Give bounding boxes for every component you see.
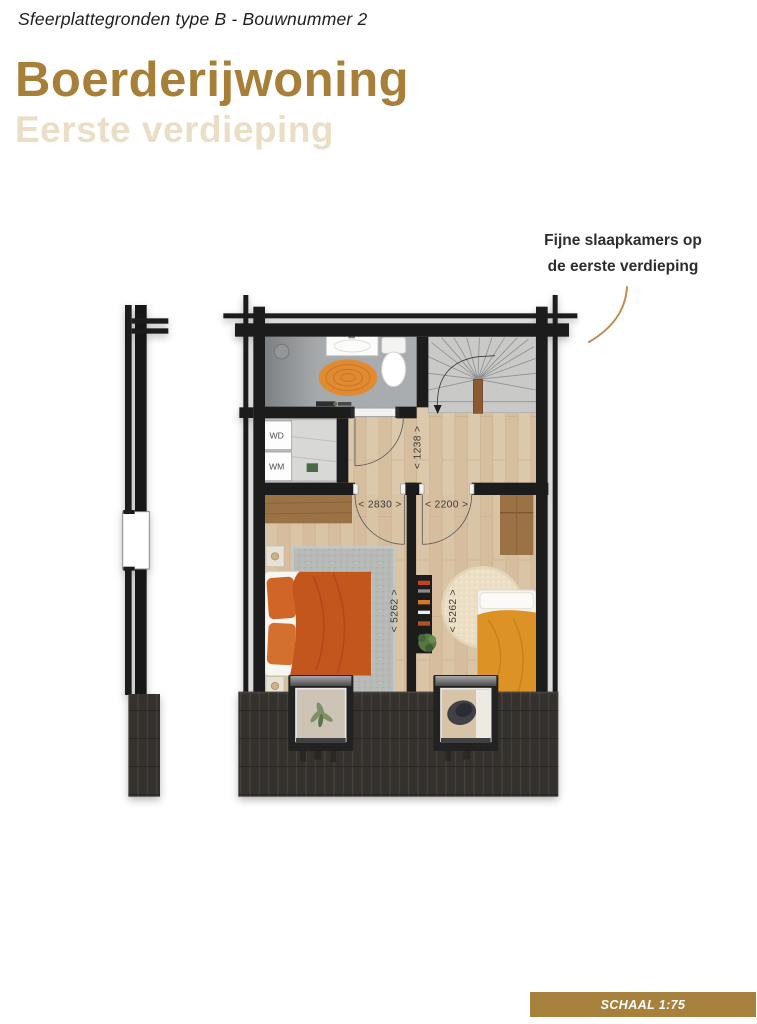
bedroom1-wardrobe (263, 493, 352, 524)
stair-newel-post (473, 379, 482, 413)
callout-line-1: Fijne slaapkamers op (512, 228, 734, 254)
shower-drain-icon (274, 344, 289, 359)
strip-roof (128, 694, 160, 797)
neighbour-wall-strip (123, 305, 169, 797)
washer-label: WM (269, 462, 284, 472)
dormer-window-right (433, 675, 498, 761)
bathroom-door (351, 407, 400, 418)
strip-window (123, 510, 150, 571)
dim-hall-depth: < 1238 > (413, 426, 424, 469)
bed-through-window (476, 690, 490, 740)
dim-bedroom1-depth: < 5262 > (390, 589, 401, 632)
brochure-page: Sfeerplattegronden type B - Bouwnummer 2… (0, 0, 757, 1024)
wall-bath-bottom-right (397, 407, 417, 419)
pillow (480, 593, 533, 609)
dim-bedroom2-depth: < 5262 > (448, 589, 459, 632)
scale-badge: SCHAAL 1:75 (530, 992, 756, 1017)
scale-label: SCHAAL 1:75 (601, 998, 686, 1012)
wall-bedrooms-left (265, 483, 355, 495)
dryer-label: WD (269, 431, 283, 441)
floor-plan: WD WM (100, 290, 580, 810)
page-title: Boerderijwoning (15, 54, 409, 108)
callout-text: Fijne slaapkamers op de eerste verdiepin… (512, 228, 734, 280)
page-eyebrow: Sfeerplattegronden type B - Bouwnummer 2 (18, 9, 367, 30)
wall-closet-right (337, 418, 349, 482)
wall-bedroom-divider (407, 483, 416, 692)
pillow (266, 576, 296, 619)
page-subtitle: Eerste verdieping (15, 110, 334, 151)
dormer-window-left (288, 675, 353, 762)
callout-line-2: de eerste verdieping (512, 254, 734, 280)
callout-leader-curve (575, 280, 645, 355)
dim-bedroom2-width: < 2200 > (425, 499, 468, 510)
toilet-tank (382, 337, 406, 353)
wall-bath-stair (417, 337, 429, 408)
dim-bedroom1-width: < 2830 > (358, 499, 401, 510)
bedroom1-duvet (290, 572, 371, 676)
toilet-bowl (382, 352, 406, 387)
pillow (267, 623, 296, 666)
wall-bath-bottom-left (265, 407, 353, 419)
roof (238, 675, 558, 797)
